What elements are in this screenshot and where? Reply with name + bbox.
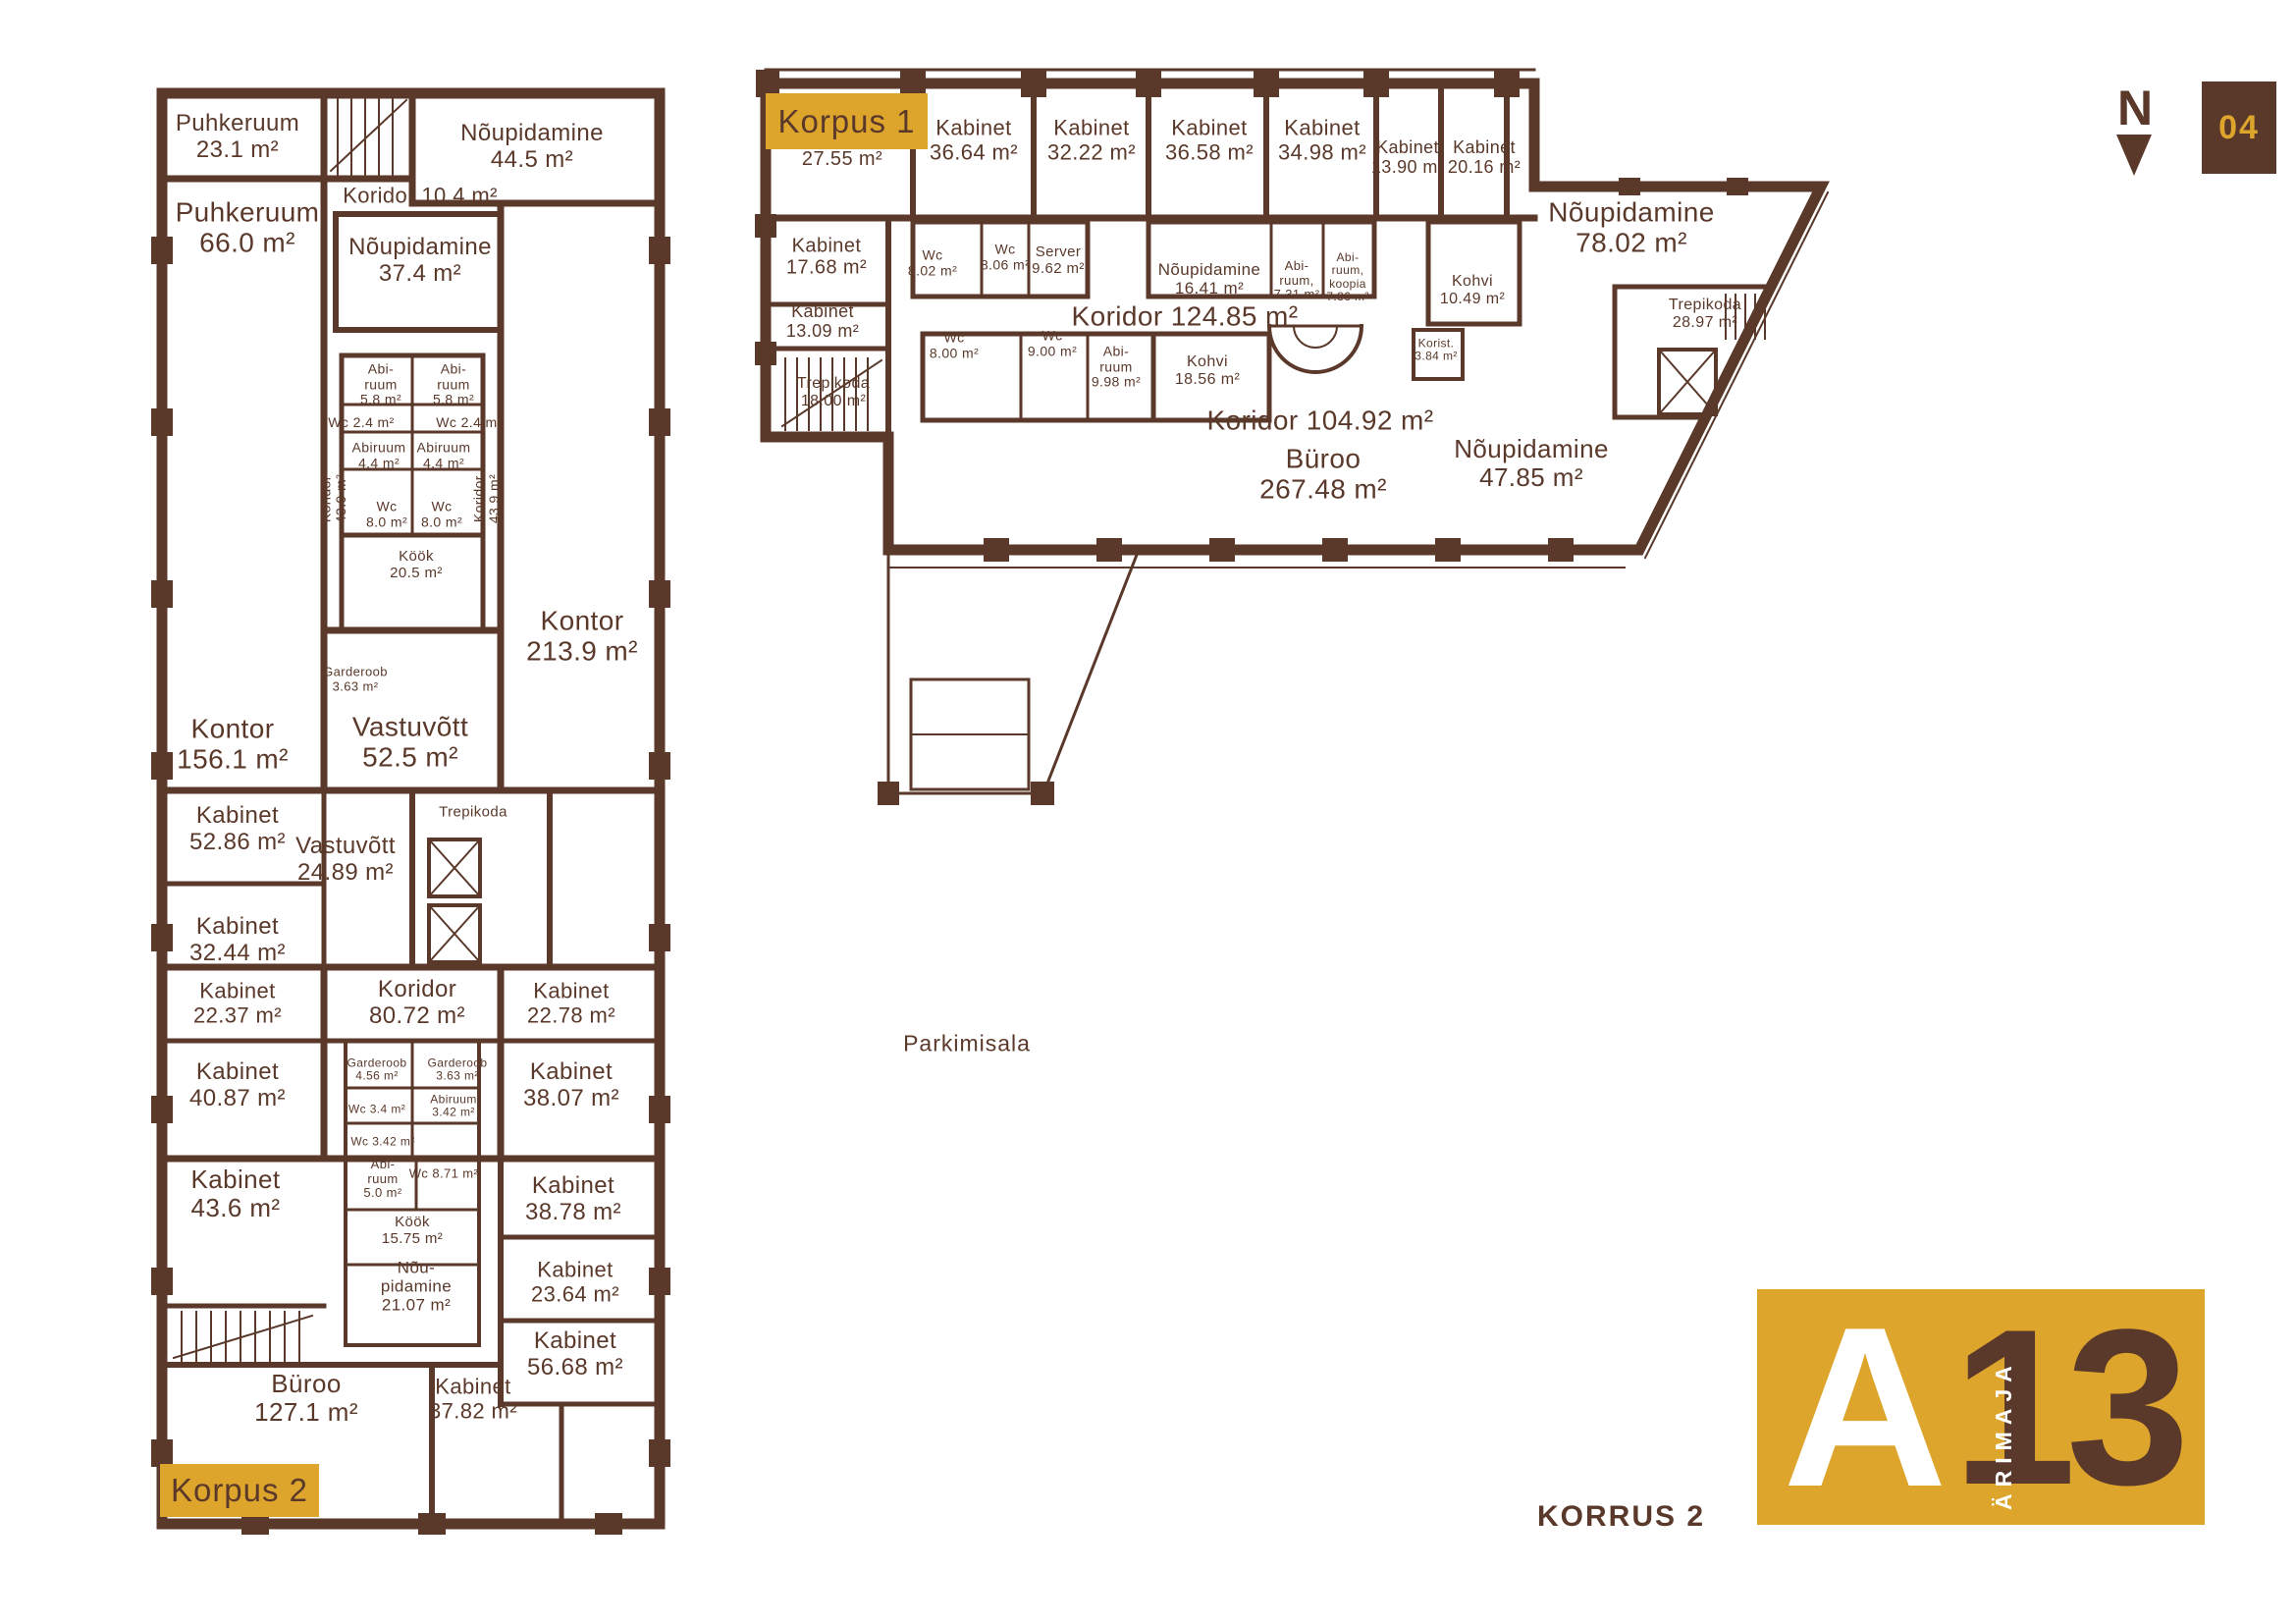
floor-label: KORRUS 2 <box>1537 1500 1705 1534</box>
sheet-number-badge: 04 <box>2202 81 2276 174</box>
room-label: Kabinet22.78 m² <box>527 979 615 1027</box>
room-label: Kabinet38.78 m² <box>525 1173 621 1226</box>
compass-letter: N <box>2117 83 2153 133</box>
room-label: Vastuvõtt52.5 m² <box>352 712 468 774</box>
room-label: Wc8.0 m² <box>366 499 407 529</box>
room-label: Wc 3.42 m² <box>350 1135 414 1148</box>
room-label: Büroo127.1 m² <box>254 1370 358 1427</box>
room-label: Kabinet38.07 m² <box>523 1059 619 1112</box>
room-label: Kabinet22.37 m² <box>193 979 282 1027</box>
room-label: Koridor80.72 m² <box>369 977 465 1030</box>
room-label: Koridor 10.4 m² <box>343 185 498 209</box>
room-label: Kabinet40.87 m² <box>189 1059 286 1112</box>
parking-area-label: Parkimisala <box>903 1031 1031 1057</box>
room-label: Garderoob3.63 m² <box>323 665 388 693</box>
room-label: Kontor156.1 m² <box>177 714 289 776</box>
room-label: Abiruum3.42 m² <box>430 1094 476 1120</box>
room-label: Wc8.0 m² <box>421 499 462 529</box>
room-label: Kabinet43.6 m² <box>191 1165 281 1222</box>
room-label: Koridor43.9 m² <box>471 474 502 523</box>
room-label: Kabinet37.82 m² <box>429 1375 517 1423</box>
korpus1-tag: Korpus 1 <box>766 93 928 149</box>
room-label: Kabinet23.64 m² <box>531 1258 619 1306</box>
room-label: Kabinet52.86 m² <box>189 803 286 856</box>
room-label: Trepikoda <box>439 805 507 822</box>
room-label: Nõu- pidamine21.07 m² <box>381 1258 452 1314</box>
room-label: Kontor213.9 m² <box>526 606 638 668</box>
room-label: Wc 2.4 m² <box>328 415 394 431</box>
room-label: Vastuvõtt24.89 m² <box>295 834 396 887</box>
logo-vertical-text: ÄRIMAJA <box>1991 1356 2017 1513</box>
room-label: Garderoob3.63 m² <box>428 1057 488 1084</box>
room-label: Koridor43.9 m² <box>318 474 348 523</box>
room-label: Kabinet32.44 m² <box>189 914 286 967</box>
room-label: Köök15.75 m² <box>382 1215 443 1248</box>
room-label: Wc 3.4 m² <box>348 1103 405 1115</box>
room-label: Garderoob4.56 m² <box>347 1057 407 1084</box>
room-label: Kabinet56.68 m² <box>527 1328 623 1381</box>
room-label: Abi- ruum5.8 m² <box>433 361 474 407</box>
room-label: Nõupidamine37.4 m² <box>348 235 492 288</box>
room-label: Abiruum4.4 m² <box>352 440 406 470</box>
room-label: Abi- ruum5.0 m² <box>363 1158 401 1201</box>
korpus2-tag: Korpus 2 <box>160 1464 319 1517</box>
room-label: Nõupidamine44.5 m² <box>460 121 604 174</box>
a13-logo: A 13 ÄRIMAJA <box>1757 1289 2205 1525</box>
room-label: Abiruum4.4 m² <box>417 440 471 470</box>
room-label: Wc 2.4 m² <box>436 415 502 431</box>
room-label: Puhkeruum66.0 m² <box>176 197 320 259</box>
room-label: Wc 8.71 m² <box>409 1167 478 1182</box>
floorplan-sheet: 27.55 m²Kabinet36.64 m²Kabinet32.22 m²Ka… <box>0 0 2296 1624</box>
room-label: Abi- ruum5.8 m² <box>360 361 401 407</box>
room-label: Puhkeruum23.1 m² <box>176 111 299 164</box>
room-label: Köök20.5 m² <box>390 549 443 582</box>
north-compass-icon: N <box>2101 83 2169 191</box>
logo-number-13: 13 <box>1924 1295 2209 1519</box>
